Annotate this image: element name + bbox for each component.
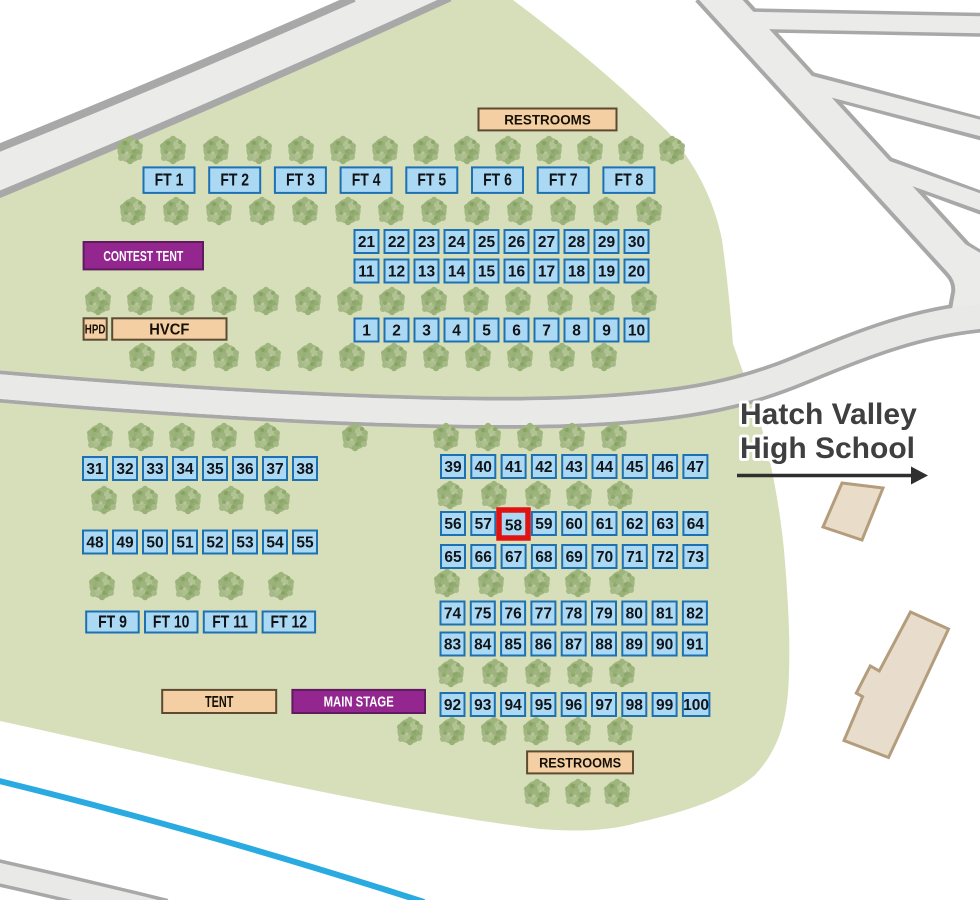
svg-text:76: 76 xyxy=(504,606,522,623)
svg-text:37: 37 xyxy=(266,461,283,478)
svg-text:36: 36 xyxy=(236,461,254,478)
svg-text:96: 96 xyxy=(565,697,583,714)
svg-text:78: 78 xyxy=(565,606,583,623)
svg-text:CONTEST TENT: CONTEST TENT xyxy=(103,248,183,264)
svg-text:18: 18 xyxy=(568,264,586,281)
svg-text:32: 32 xyxy=(116,461,133,478)
svg-text:77: 77 xyxy=(535,606,552,623)
svg-text:100: 100 xyxy=(683,697,709,714)
svg-text:14: 14 xyxy=(448,264,466,281)
svg-text:48: 48 xyxy=(86,535,104,552)
svg-text:26: 26 xyxy=(508,234,526,251)
svg-text:58: 58 xyxy=(505,518,523,535)
svg-text:FT 9: FT 9 xyxy=(98,613,127,632)
svg-text:MAIN STAGE: MAIN STAGE xyxy=(324,693,394,710)
svg-text:FT 1: FT 1 xyxy=(155,171,184,190)
svg-text:42: 42 xyxy=(535,459,552,476)
svg-text:RESTROOMS: RESTROOMS xyxy=(539,755,621,771)
svg-text:8: 8 xyxy=(572,323,581,340)
svg-text:90: 90 xyxy=(656,637,673,654)
svg-text:87: 87 xyxy=(565,637,582,654)
svg-text:24: 24 xyxy=(448,234,466,251)
svg-text:FT 5: FT 5 xyxy=(417,171,446,190)
svg-text:FT 3: FT 3 xyxy=(286,171,315,190)
svg-text:75: 75 xyxy=(474,606,492,623)
svg-text:53: 53 xyxy=(236,535,254,552)
svg-text:High School: High School xyxy=(740,432,915,465)
svg-text:80: 80 xyxy=(626,606,643,623)
svg-text:9: 9 xyxy=(602,323,611,340)
svg-text:13: 13 xyxy=(418,264,436,281)
svg-text:88: 88 xyxy=(595,637,613,654)
svg-text:65: 65 xyxy=(444,549,462,566)
svg-text:79: 79 xyxy=(595,606,613,623)
svg-text:61: 61 xyxy=(596,516,614,533)
svg-text:83: 83 xyxy=(444,637,462,654)
svg-text:45: 45 xyxy=(626,459,644,476)
svg-text:Hatch Valley: Hatch Valley xyxy=(740,398,917,431)
svg-text:35: 35 xyxy=(206,461,224,478)
svg-text:17: 17 xyxy=(538,264,555,281)
svg-text:12: 12 xyxy=(388,264,405,281)
svg-text:23: 23 xyxy=(418,234,436,251)
svg-text:3: 3 xyxy=(422,323,431,340)
svg-text:6: 6 xyxy=(512,323,521,340)
svg-text:68: 68 xyxy=(535,549,553,566)
svg-text:29: 29 xyxy=(598,234,616,251)
svg-text:FT 10: FT 10 xyxy=(153,613,190,632)
svg-text:39: 39 xyxy=(444,459,462,476)
svg-text:33: 33 xyxy=(146,461,164,478)
svg-text:40: 40 xyxy=(475,459,492,476)
svg-text:69: 69 xyxy=(566,549,584,566)
svg-text:56: 56 xyxy=(444,516,462,533)
svg-text:30: 30 xyxy=(628,234,645,251)
svg-text:91: 91 xyxy=(686,637,704,654)
svg-text:FT 12: FT 12 xyxy=(271,613,308,632)
svg-text:47: 47 xyxy=(687,459,704,476)
svg-text:HVCF: HVCF xyxy=(149,321,189,338)
svg-text:31: 31 xyxy=(86,461,104,478)
svg-text:66: 66 xyxy=(475,549,493,566)
svg-text:2: 2 xyxy=(392,323,401,340)
svg-text:98: 98 xyxy=(626,697,644,714)
svg-text:46: 46 xyxy=(656,459,674,476)
svg-text:82: 82 xyxy=(686,606,703,623)
svg-text:38: 38 xyxy=(296,461,314,478)
svg-text:51: 51 xyxy=(176,535,194,552)
svg-text:27: 27 xyxy=(538,234,555,251)
svg-text:85: 85 xyxy=(504,637,522,654)
svg-text:22: 22 xyxy=(388,234,405,251)
svg-text:95: 95 xyxy=(535,697,553,714)
svg-text:5: 5 xyxy=(482,323,491,340)
svg-text:86: 86 xyxy=(535,637,553,654)
svg-text:50: 50 xyxy=(146,535,163,552)
svg-text:44: 44 xyxy=(596,459,614,476)
svg-text:FT 7: FT 7 xyxy=(549,171,578,190)
svg-text:81: 81 xyxy=(656,606,674,623)
svg-text:72: 72 xyxy=(656,549,673,566)
svg-text:54: 54 xyxy=(266,535,284,552)
svg-text:FT 2: FT 2 xyxy=(220,171,249,190)
svg-text:RESTROOMS: RESTROOMS xyxy=(504,112,591,127)
svg-text:16: 16 xyxy=(508,264,526,281)
svg-text:FT 4: FT 4 xyxy=(352,171,381,190)
svg-text:4: 4 xyxy=(452,323,461,340)
svg-text:FT 8: FT 8 xyxy=(615,171,644,190)
svg-text:10: 10 xyxy=(628,323,645,340)
svg-text:FT 11: FT 11 xyxy=(212,613,248,632)
svg-text:70: 70 xyxy=(596,549,613,566)
svg-text:94: 94 xyxy=(504,697,522,714)
svg-text:TENT: TENT xyxy=(205,693,234,711)
svg-text:97: 97 xyxy=(595,697,612,714)
svg-text:7: 7 xyxy=(542,323,551,340)
svg-text:28: 28 xyxy=(568,234,586,251)
svg-text:FT 6: FT 6 xyxy=(483,171,512,190)
svg-text:21: 21 xyxy=(358,234,376,251)
svg-text:99: 99 xyxy=(656,697,674,714)
svg-text:20: 20 xyxy=(628,264,645,281)
svg-text:49: 49 xyxy=(116,535,134,552)
svg-text:43: 43 xyxy=(566,459,584,476)
svg-text:55: 55 xyxy=(296,535,314,552)
svg-text:67: 67 xyxy=(505,549,522,566)
svg-text:63: 63 xyxy=(656,516,674,533)
svg-text:15: 15 xyxy=(478,264,496,281)
svg-text:41: 41 xyxy=(505,459,523,476)
svg-text:52: 52 xyxy=(206,535,223,552)
svg-text:73: 73 xyxy=(687,549,705,566)
svg-text:60: 60 xyxy=(566,516,583,533)
svg-text:59: 59 xyxy=(535,516,553,533)
svg-text:84: 84 xyxy=(474,637,492,654)
svg-text:HPD: HPD xyxy=(85,324,106,338)
svg-text:89: 89 xyxy=(626,637,644,654)
svg-text:57: 57 xyxy=(475,516,492,533)
svg-text:71: 71 xyxy=(626,549,644,566)
svg-text:92: 92 xyxy=(444,697,461,714)
svg-text:93: 93 xyxy=(474,697,492,714)
svg-text:64: 64 xyxy=(687,516,705,533)
svg-text:74: 74 xyxy=(444,606,462,623)
svg-text:25: 25 xyxy=(478,234,496,251)
svg-text:19: 19 xyxy=(598,264,616,281)
svg-text:1: 1 xyxy=(362,323,371,340)
svg-text:62: 62 xyxy=(626,516,643,533)
svg-text:11: 11 xyxy=(358,264,375,281)
svg-text:34: 34 xyxy=(176,461,194,478)
